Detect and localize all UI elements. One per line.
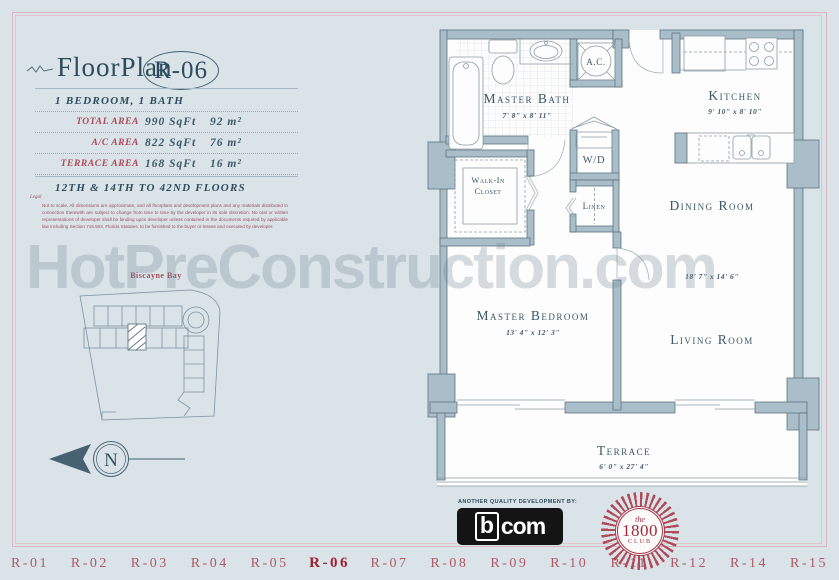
bath-sink [530, 41, 562, 61]
watermark: HotPreConstruction.com [26, 232, 716, 303]
nav-item-r10[interactable]: R-10 [539, 556, 599, 572]
room-label-walkin-1: Walk-In [471, 175, 504, 185]
area-sqft: 168 SqFt [145, 158, 210, 170]
club-logo-text: the 1800 CLUB [601, 492, 679, 570]
nav-item-r08[interactable]: R-08 [419, 556, 479, 572]
nav-item-r14[interactable]: R-14 [719, 556, 779, 572]
table-row: TOTAL AREA 990 SqFt 92 m² [35, 111, 298, 132]
divider [35, 88, 298, 89]
table-row: TERRACE AREA 168 SqFt 16 m² [35, 153, 298, 175]
compass-arrow [49, 444, 91, 474]
nav-item-r04[interactable]: R-04 [180, 556, 240, 572]
refrigerator [684, 36, 725, 71]
bcom-logo-com: com [501, 513, 545, 540]
area-table: TOTAL AREA 990 SqFt 92 m² A/C AREA 822 S… [35, 111, 298, 175]
room-label-master-bedroom: Master Bedroom [477, 308, 590, 323]
area-row-label: TERRACE AREA [35, 159, 145, 169]
unit-badge: R-06 [143, 51, 219, 90]
compass: N [45, 438, 260, 480]
bathtub [449, 57, 483, 149]
nav-item-r05[interactable]: R-05 [240, 556, 300, 572]
nav-item-r09[interactable]: R-09 [479, 556, 539, 572]
area-sqft: 990 SqFt [145, 116, 210, 128]
club-logo-year: 1800 [622, 523, 658, 539]
room-label-dining: Dining Room [669, 198, 754, 213]
area-row-label: TOTAL AREA [35, 117, 145, 127]
nav-item-r06[interactable]: R-06 [300, 555, 360, 572]
room-label-ac: A.C. [586, 57, 605, 67]
toilet [489, 40, 517, 53]
nav-item-r03[interactable]: R-03 [120, 556, 180, 572]
floorplan-page: FloorPlan R-06 1 BEDROOM, 1 BATH TOTAL A… [0, 0, 839, 580]
bcom-logo-b: b [475, 512, 499, 541]
room-label-master-bath: Master Bath [484, 91, 571, 106]
room-label-linen: Linen [583, 201, 606, 211]
table-row: A/C AREA 822 SqFt 76 m² [35, 132, 298, 153]
compass-north-label: N [104, 450, 118, 471]
room-label-kitchen: Kitchen [708, 88, 761, 103]
floorplan-nav: R-01 R-02 R-03 R-04 R-05 R-06 R-07 R-08 … [0, 547, 839, 580]
club-logo-name: CLUB [628, 539, 652, 546]
area-metric: 76 m² [210, 137, 298, 149]
bed-bath-subtitle: 1 BEDROOM, 1 BATH [55, 95, 184, 107]
room-label-wd: W/D [583, 155, 606, 166]
club-1800-logo[interactable]: the 1800 CLUB [601, 492, 679, 570]
nav-item-r15[interactable]: R-15 [779, 556, 839, 572]
room-label-terrace: Terrace [597, 443, 651, 458]
bcom-logo[interactable]: b com [457, 508, 563, 545]
divider [35, 176, 298, 177]
legal-title: Legal [30, 195, 41, 200]
room-dims-kitchen: 9' 10" x 8' 10" [708, 107, 762, 116]
nav-item-r07[interactable]: R-07 [360, 556, 420, 572]
legal-disclaimer: Not to scale. All dimensions are approxi… [42, 202, 288, 230]
area-metric: 16 m² [210, 158, 298, 170]
decorative-squiggle [26, 64, 54, 76]
area-sqft: 822 SqFt [145, 137, 210, 149]
nav-item-r02[interactable]: R-02 [60, 556, 120, 572]
room-label-walkin-2: Closet [475, 186, 502, 196]
nav-item-r01[interactable]: R-01 [0, 556, 60, 572]
room-dims-terrace: 6' 0" x 27' 4" [599, 462, 649, 471]
room-dims-master-bedroom: 13' 4" x 12' 3" [506, 328, 560, 337]
room-label-living: Living Room [670, 332, 754, 347]
site-plan [72, 284, 242, 434]
area-row-label: A/C AREA [35, 138, 145, 148]
area-metric: 92 m² [210, 116, 298, 128]
floors-note: 12TH & 14TH TO 42ND FLOORS [55, 182, 246, 194]
room-dims-master-bath: 7' 8" x 8' 11" [502, 111, 551, 120]
